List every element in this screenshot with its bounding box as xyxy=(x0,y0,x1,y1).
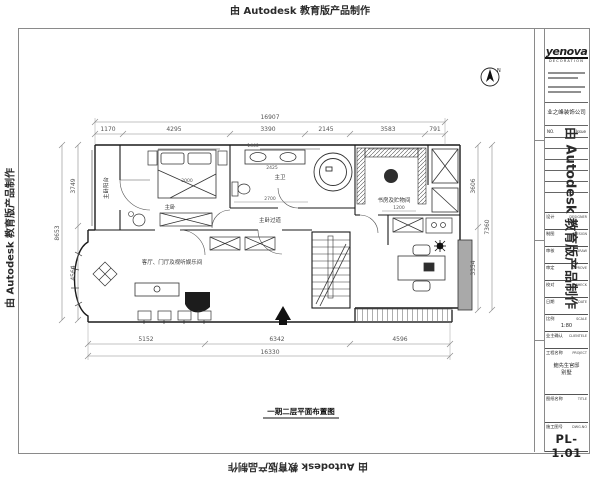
watermark-top: 由 Autodesk 教育版产品制作 xyxy=(230,2,370,17)
bathroom-counter xyxy=(245,150,305,164)
dim-left-total: 8653 xyxy=(54,225,61,240)
room-label-corridor: 主卧过道 xyxy=(259,216,282,224)
dim-top-4: 2145 xyxy=(318,126,333,133)
chair xyxy=(129,212,134,217)
room-label-study: 书房及贮物间 xyxy=(377,196,410,204)
grand-piano xyxy=(185,292,210,312)
fine-print-line xyxy=(548,91,581,93)
terrace-railing xyxy=(355,309,452,322)
dim-right-1: 3606 xyxy=(470,178,477,193)
dim-left-2: 4564 xyxy=(70,265,77,280)
dining-table xyxy=(398,245,445,291)
nightstand xyxy=(218,151,227,165)
watermark-bottom: 由 Autodesk 教育版产品制作 xyxy=(228,461,368,476)
svg-text:N: N xyxy=(497,68,501,74)
dim-right-total: 7360 xyxy=(484,219,491,234)
company-name: 业之峰装饰公司 xyxy=(545,108,588,116)
fold-mark xyxy=(534,340,544,341)
drawing-sheet: 由 Autodesk 教育版产品制作 由 Autodesk 教育版产品制作 由 … xyxy=(0,0,600,480)
dim-bottom-2: 6342 xyxy=(269,336,284,343)
cabinets xyxy=(210,237,275,250)
round-bathtub xyxy=(314,153,352,191)
dimension-lines xyxy=(59,118,495,360)
field-client: 业主确认 CLIENTELE xyxy=(545,331,588,348)
fine-print-line xyxy=(548,72,585,74)
company-logo: yenova xyxy=(545,46,588,59)
exterior-walls xyxy=(75,145,461,322)
wardrobe xyxy=(160,213,212,226)
fold-mark xyxy=(534,240,544,241)
plant xyxy=(434,240,446,252)
dim-bottom-1: 5152 xyxy=(138,336,153,343)
dim-bottom-3: 4596 xyxy=(392,336,407,343)
watermark-left: 由 Autodesk 教育版产品制作 xyxy=(2,168,17,308)
dim-bottom-total: 16330 xyxy=(260,349,279,356)
round-stool xyxy=(384,169,398,183)
dim-top-total: 16907 xyxy=(260,114,279,121)
dim-bath-top: 1440 xyxy=(247,143,259,149)
dim-bath-width: 2700 xyxy=(264,196,276,202)
dim-top-5: 3583 xyxy=(380,126,395,133)
staircase xyxy=(312,236,350,306)
dim-top-1: 1170 xyxy=(100,126,115,133)
shelf xyxy=(357,148,365,204)
room-label-balcony: 主卧阳台 xyxy=(102,177,110,200)
dim-bed: 2000 xyxy=(181,178,193,184)
north-compass-icon: N xyxy=(481,68,501,86)
floor-plan: N 主卧阳台 主卧 主卫 主卧过道 书房及贮物间 客厅、门厅及视听娱乐间 xyxy=(20,30,534,452)
room-label-bath: 主卫 xyxy=(274,173,286,181)
project-section: 工程名称 PROJECT 鲍先生官邸 别墅 xyxy=(545,348,588,394)
tv-cabinet xyxy=(135,283,179,296)
shelf xyxy=(418,148,426,204)
sheet-title-section: 图纸名称 TITLE xyxy=(545,394,588,422)
drawing-number: PL-1.01 xyxy=(545,432,588,460)
dim-top-2: 4295 xyxy=(166,126,181,133)
scale-value: 1:80 xyxy=(545,323,588,329)
toilet xyxy=(232,182,250,196)
room-label-bedroom: 主卧 xyxy=(164,203,176,211)
dim-top-6: 791 xyxy=(429,126,441,133)
dim-top-3: 3390 xyxy=(260,126,275,133)
fine-print-line xyxy=(548,86,585,88)
plan-caption: 一期二层平面布置图 xyxy=(267,406,335,416)
dwg-section: 施工图号 DWG.NO PL-1.01 xyxy=(545,422,588,452)
dim-left-1: 3749 xyxy=(70,178,77,193)
shaft-xbrace xyxy=(432,149,458,212)
company-logo-sub: DECORATION xyxy=(545,59,588,63)
card-table xyxy=(93,262,117,286)
dim-bath-counter: 2425 xyxy=(266,165,278,171)
shelf xyxy=(365,148,418,157)
watermark-right: 由 Autodesk 教育版产品制作 xyxy=(563,127,582,309)
dim-desk: 1200 xyxy=(393,205,405,211)
side-table xyxy=(133,214,145,226)
fine-print-line xyxy=(548,77,578,79)
kitchen-cabinet xyxy=(393,218,452,233)
nightstand xyxy=(148,151,157,165)
field-scale: 比例 SCALE 1:80 xyxy=(545,314,588,331)
project-name: 鲍先生官邸 别墅 xyxy=(545,363,588,377)
fold-mark xyxy=(534,140,544,141)
room-label-living: 客厅、门厅及视听娱乐间 xyxy=(142,258,203,266)
rev-no-label: NO. xyxy=(547,129,554,134)
bed xyxy=(158,150,216,198)
caption-group: 一期二层平面布置图 xyxy=(263,406,339,418)
dim-right-2: 3354 xyxy=(470,260,477,275)
